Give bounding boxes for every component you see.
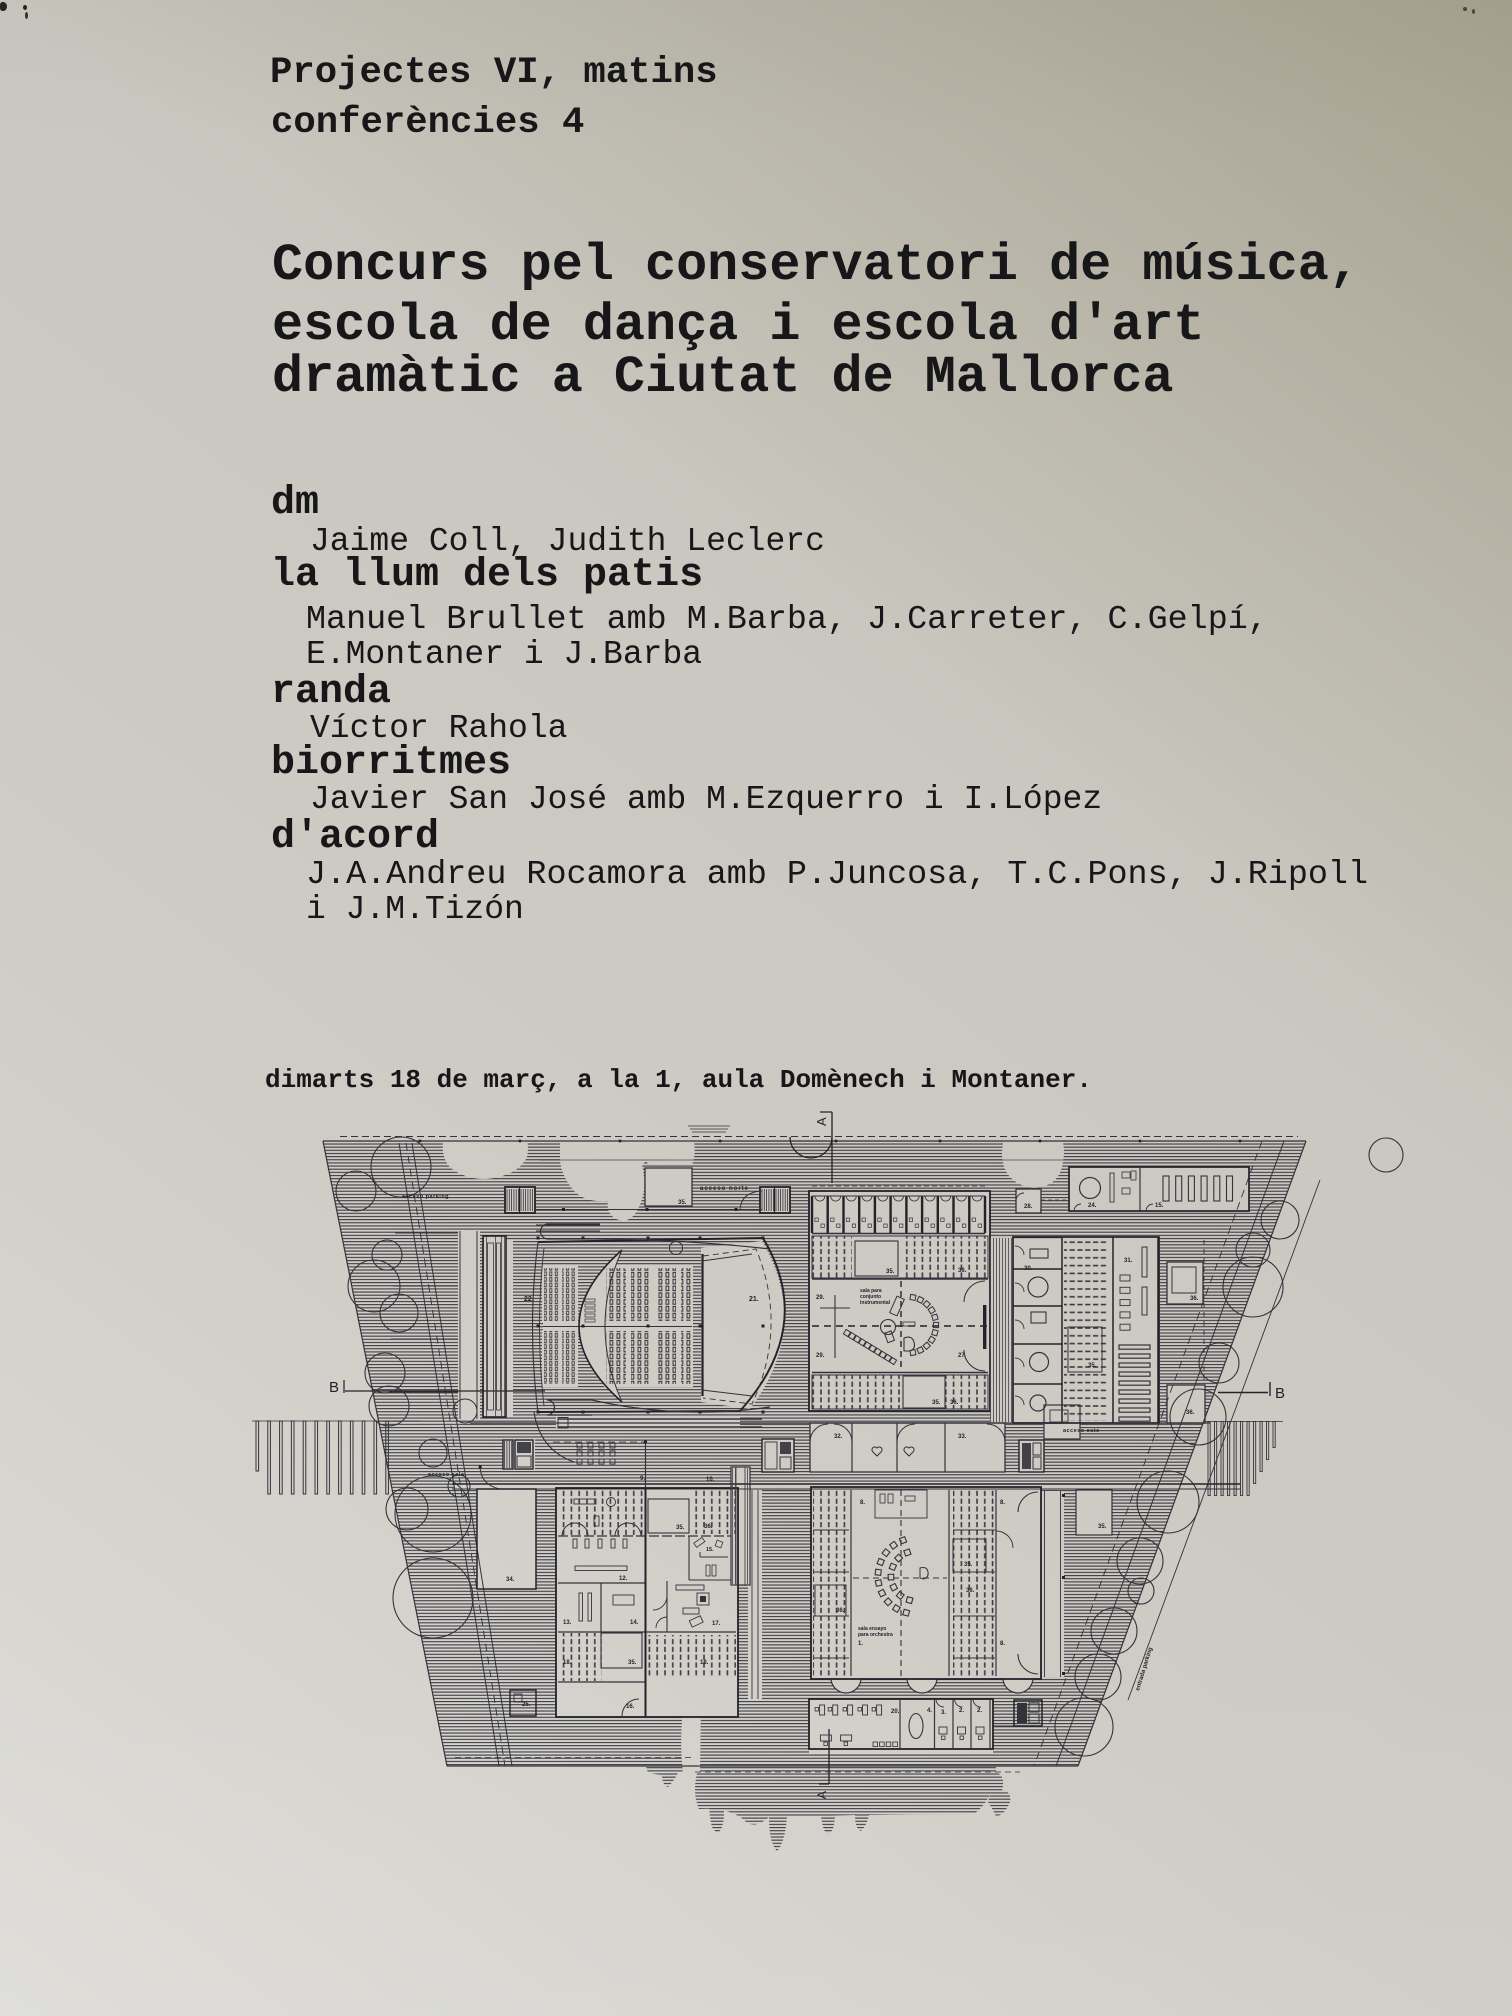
svg-text:8.: 8.: [860, 1500, 865, 1506]
svg-text:35.: 35.: [678, 1200, 687, 1206]
svg-text:B: B: [329, 1379, 339, 1396]
svg-text:3.: 3.: [941, 1710, 946, 1716]
svg-text:acceso este: acceso este: [1063, 1428, 1100, 1434]
svg-text:36.: 36.: [958, 1268, 967, 1274]
svg-text:25.: 25.: [522, 1702, 531, 1708]
svg-text:12.: 12.: [619, 1576, 628, 1582]
svg-text:36.: 36.: [966, 1588, 975, 1594]
svg-text:instrumental: instrumental: [860, 1300, 891, 1306]
svg-text:A: A: [815, 1791, 829, 1799]
svg-text:35.: 35.: [676, 1525, 685, 1531]
svg-text:35.: 35.: [886, 1269, 895, 1275]
svg-text:24.: 24.: [1088, 1203, 1097, 1209]
svg-text:36.: 36.: [950, 1400, 959, 1406]
svg-text:21.: 21.: [749, 1296, 759, 1303]
svg-text:35.: 35.: [932, 1400, 941, 1406]
svg-text:acceso parking: acceso parking: [402, 1194, 449, 1200]
svg-text:13.: 13.: [563, 1620, 572, 1626]
svg-text:18.: 18.: [563, 1660, 572, 1666]
svg-text:36.: 36.: [1186, 1410, 1195, 1416]
svg-text:32.: 32.: [834, 1434, 843, 1440]
svg-text:20.: 20.: [891, 1709, 900, 1715]
svg-text:16.: 16.: [626, 1704, 635, 1710]
svg-text:30.: 30.: [1024, 1266, 1033, 1272]
svg-text:1.: 1.: [858, 1641, 863, 1647]
svg-text:acceso sala: acceso sala: [428, 1472, 465, 1478]
svg-text:2.: 2.: [959, 1708, 964, 1714]
svg-text:2.: 2.: [977, 1708, 982, 1714]
svg-text:18.: 18.: [700, 1660, 709, 1666]
svg-text:15.: 15.: [1155, 1203, 1164, 1209]
svg-text:acceso norte: acceso norte: [700, 1186, 749, 1192]
svg-text:36.: 36.: [1190, 1296, 1199, 1302]
svg-text:17.: 17.: [712, 1621, 721, 1627]
svg-text:36.: 36.: [704, 1524, 713, 1530]
svg-text:27: 27: [958, 1353, 965, 1359]
svg-text:35.: 35.: [1088, 1363, 1097, 1369]
svg-text:4.: 4.: [927, 1708, 932, 1714]
svg-text:36.: 36.: [836, 1608, 845, 1614]
svg-text:8.: 8.: [1000, 1641, 1005, 1647]
svg-text:22.: 22.: [524, 1296, 534, 1303]
svg-text:B: B: [1275, 1385, 1285, 1402]
svg-text:33.: 33.: [958, 1434, 967, 1440]
svg-text:35.: 35.: [628, 1660, 637, 1666]
svg-text:8.: 8.: [1000, 1500, 1005, 1506]
svg-text:10.: 10.: [706, 1477, 715, 1483]
svg-text:28.: 28.: [1024, 1204, 1033, 1210]
svg-text:35.: 35.: [1098, 1524, 1107, 1530]
svg-text:34.: 34.: [506, 1577, 515, 1583]
svg-text:29.: 29.: [816, 1353, 825, 1359]
svg-text:9.: 9.: [640, 1476, 645, 1482]
svg-text:15.: 15.: [706, 1547, 714, 1553]
svg-text:29.: 29.: [816, 1295, 825, 1301]
svg-text:A: A: [814, 1117, 829, 1126]
svg-text:14.: 14.: [630, 1620, 639, 1626]
svg-text:35.: 35.: [964, 1562, 973, 1568]
svg-text:31.: 31.: [1124, 1258, 1133, 1264]
svg-text:para orchestra: para orchestra: [858, 1632, 893, 1638]
